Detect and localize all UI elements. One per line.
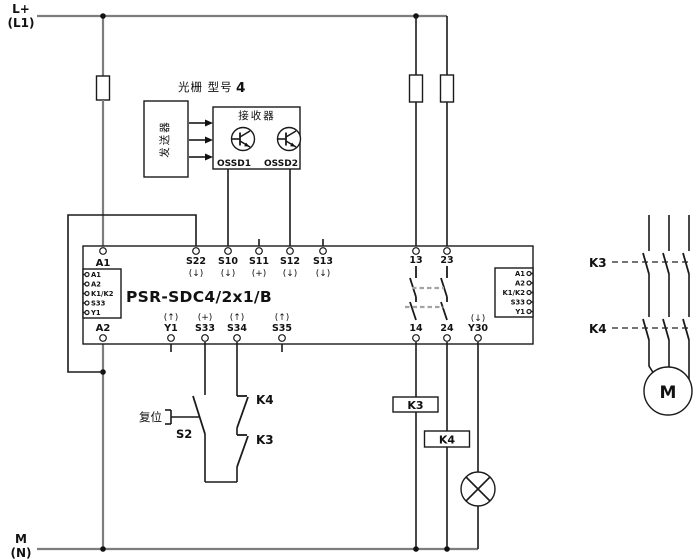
y30-label: Y30	[467, 323, 488, 334]
s34-dir: (↑)	[230, 313, 245, 323]
motor-icon: M	[644, 367, 692, 415]
receiver-label: 接收器	[238, 109, 276, 122]
terminal-24	[444, 335, 451, 342]
right-connector-box: A1 A2 K1/K2 S33 Y1	[495, 268, 533, 317]
right-connector-label: Y1	[514, 308, 525, 316]
s10-label: S10	[218, 256, 238, 267]
ossd1-transistor-icon	[232, 128, 255, 151]
light-curtain-type-number: 4	[236, 80, 245, 96]
feedback-contact-k3: K3	[237, 433, 274, 467]
left-connector-label: K1/K2	[91, 290, 114, 298]
transmitter-box: 发送器	[144, 101, 188, 177]
terminal-s13	[320, 248, 327, 255]
s35-dir: (↑)	[275, 313, 290, 323]
l1-label: (L1)	[8, 16, 35, 30]
safety-relay-block: PSR-SDC4/2x1/B A1 A2 K1/K2 S33 Y1	[83, 239, 533, 352]
right-connector-label: K1/K2	[503, 289, 526, 297]
s11-dir: (+)	[252, 269, 267, 279]
s33-dir: (+)	[198, 313, 213, 323]
top-power-rail: L+ (L1)	[8, 2, 447, 30]
s22-dir: (↓)	[189, 269, 204, 279]
k3-feedback-label: K3	[256, 433, 274, 447]
ossd2-transistor-icon	[278, 128, 301, 151]
reset-label: 复位	[139, 410, 162, 424]
fuse-13-icon	[410, 75, 423, 102]
right-connector-label: A1	[515, 270, 525, 278]
beam-arrow-icon	[189, 154, 213, 161]
junction-dot	[100, 546, 106, 552]
light-curtain: 光栅 型号 4 发送器 接收器	[144, 80, 301, 247]
indicator-lamp-icon	[461, 472, 495, 506]
terminal-14	[413, 335, 420, 342]
receiver-box: 接收器 OSSD1 OSSD2	[213, 107, 301, 169]
fuse-23-icon	[441, 75, 454, 102]
contact-24-label: 24	[440, 323, 454, 334]
terminal-a1	[100, 248, 107, 255]
s2-blade	[193, 396, 205, 434]
contactor-k4-label: K4	[589, 322, 607, 336]
junction-dot	[413, 546, 419, 552]
a1-label: A1	[96, 258, 111, 269]
reset-button-s2: 复位 S2	[139, 396, 205, 441]
motor-branch: K3 K4 M	[589, 215, 692, 415]
s35-label: S35	[272, 323, 292, 334]
s12-label: S12	[280, 256, 300, 267]
terminal-s12	[287, 248, 294, 255]
terminal-a2	[100, 335, 107, 342]
y1-label: Y1	[163, 323, 178, 334]
transmitter-label: 发送器	[158, 120, 171, 158]
k4-coil-label: K4	[439, 434, 456, 447]
contactor-k4-contacts: K4	[589, 319, 689, 340]
right-connector-label: S33	[511, 299, 526, 307]
output-circuit: K3 K4	[393, 342, 495, 552]
circuit-diagram: L+ (L1) M (N) 光栅 型号 4 发送器	[0, 0, 700, 560]
a2-label: A2	[96, 323, 111, 334]
relay-model-label: PSR-SDC4/2x1/B	[126, 288, 272, 306]
terminal-23	[444, 248, 451, 255]
y1-dir: (↑)	[164, 313, 179, 323]
s2-label: S2	[176, 427, 192, 441]
k4-feedback-label: K4	[256, 393, 274, 407]
left-connector-label: A2	[91, 281, 101, 289]
bottom-power-rail: M (N)	[10, 532, 478, 560]
terminal-s33	[202, 335, 209, 342]
terminal-13	[413, 248, 420, 255]
fuse-left-icon	[97, 76, 110, 100]
reset-feedback-circuit: 复位 S2 K4 K3	[139, 342, 274, 482]
s13-label: S13	[313, 256, 333, 267]
a1-supply-feed	[97, 13, 110, 247]
terminal-s34	[234, 335, 241, 342]
terminal-s11	[256, 248, 263, 255]
beam-arrow-icon	[189, 120, 213, 127]
l-plus-label: L+	[12, 2, 30, 16]
s13-dir: (↓)	[316, 269, 331, 279]
terminal-s35	[279, 335, 286, 342]
left-connector-label: A1	[91, 271, 101, 279]
light-curtain-title: 光栅 型号	[178, 80, 233, 94]
ossd1-label: OSSD1	[217, 159, 251, 169]
contact-13-feed	[410, 13, 423, 247]
terminal-s22	[193, 248, 200, 255]
s33-label: S33	[195, 323, 215, 334]
motor-label: M	[660, 383, 677, 403]
n-label: (N)	[10, 546, 31, 560]
contact-23-feed	[441, 16, 454, 247]
contactor-k3-contacts: K3	[589, 253, 689, 274]
right-connector-label: A2	[515, 280, 525, 288]
left-connector-label: Y1	[90, 309, 101, 317]
light-beam-arrows	[189, 120, 213, 161]
contact-13-label: 13	[409, 255, 422, 266]
k3-coil-label: K3	[407, 399, 423, 412]
contact-14-label: 14	[409, 323, 423, 334]
left-connector-label: S33	[91, 300, 106, 308]
junction-dot	[444, 546, 450, 552]
contactor-k3-label: K3	[589, 256, 607, 270]
terminal-y1	[168, 335, 175, 342]
beam-arrow-icon	[189, 137, 213, 144]
ossd2-label: OSSD2	[264, 159, 298, 169]
s22-label: S22	[186, 256, 206, 267]
terminal-s10	[225, 248, 232, 255]
feedback-contact-k4: K4	[237, 393, 274, 428]
relay-coil-k4: K4	[425, 342, 470, 552]
s10-dir: (↓)	[221, 269, 236, 279]
s34-label: S34	[227, 323, 247, 334]
m-label: M	[15, 532, 27, 546]
s12-dir: (↓)	[283, 269, 298, 279]
contact-23-label: 23	[440, 255, 453, 266]
s11-label: S11	[249, 256, 269, 267]
terminal-y30	[475, 335, 482, 342]
left-connector-box: A1 A2 K1/K2 S33 Y1	[83, 269, 121, 318]
junction-dot	[100, 13, 106, 19]
